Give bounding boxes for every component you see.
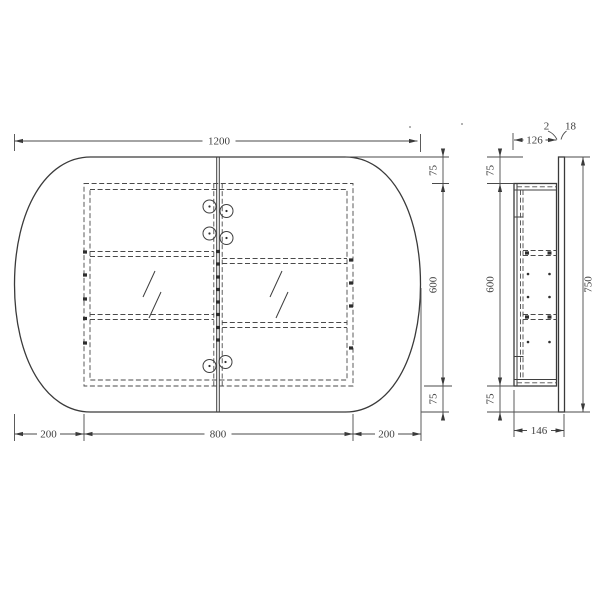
leader-lines [548, 131, 567, 140]
hinge-center-dots [210, 207, 227, 367]
cad-drawing: 1200 75 600 75 200 800 200 126 2 18 [0, 0, 600, 600]
dim-top-overhang: 75 [485, 165, 497, 177]
shelf-end-blocks [525, 253, 552, 317]
dim-overall-width: 1200 [208, 136, 231, 148]
carcass-hidden-lines [84, 184, 353, 387]
dim-total-depth: 146 [531, 425, 548, 437]
dim-carcass-depth: 126 [526, 135, 543, 147]
drawing-canvas: 1200 75 600 75 200 800 200 126 2 18 [0, 0, 600, 600]
back-panel-and-shelves [517, 187, 557, 383]
dim-top-overhang: 75 [428, 165, 440, 177]
glass-hatch-icon [143, 271, 288, 318]
door-split-line [217, 157, 220, 412]
dim-right-overhang: 200 [378, 429, 395, 441]
hinge-symbols [203, 200, 233, 373]
side-dimensions: 126 2 18 75 600 75 750 146 [485, 121, 595, 438]
dim-bottom-overhang: 75 [428, 393, 440, 405]
shelf-pin-holes [528, 274, 550, 342]
arrowheads [498, 138, 585, 433]
dim-carcass-width: 800 [210, 429, 227, 441]
dim-mirror-thickness: 18 [565, 121, 577, 133]
side-section-view: 126 2 18 75 600 75 750 146 [485, 121, 595, 438]
dim-mirror-height: 750 [583, 276, 595, 293]
front-view: 1200 75 600 75 200 800 200 [15, 134, 453, 441]
dim-gap: 2 [544, 121, 550, 133]
dimension-lines [15, 141, 444, 434]
dim-carcass-height: 600 [428, 276, 440, 293]
print-speck [410, 124, 462, 127]
dim-carcass-height: 600 [485, 276, 497, 293]
shelf-pins [83, 252, 353, 349]
mirror-slab [559, 157, 565, 412]
mirror-outline [15, 157, 421, 412]
dim-left-overhang: 200 [40, 429, 57, 441]
extension-lines [487, 133, 590, 437]
dim-bottom-overhang: 75 [485, 393, 497, 405]
